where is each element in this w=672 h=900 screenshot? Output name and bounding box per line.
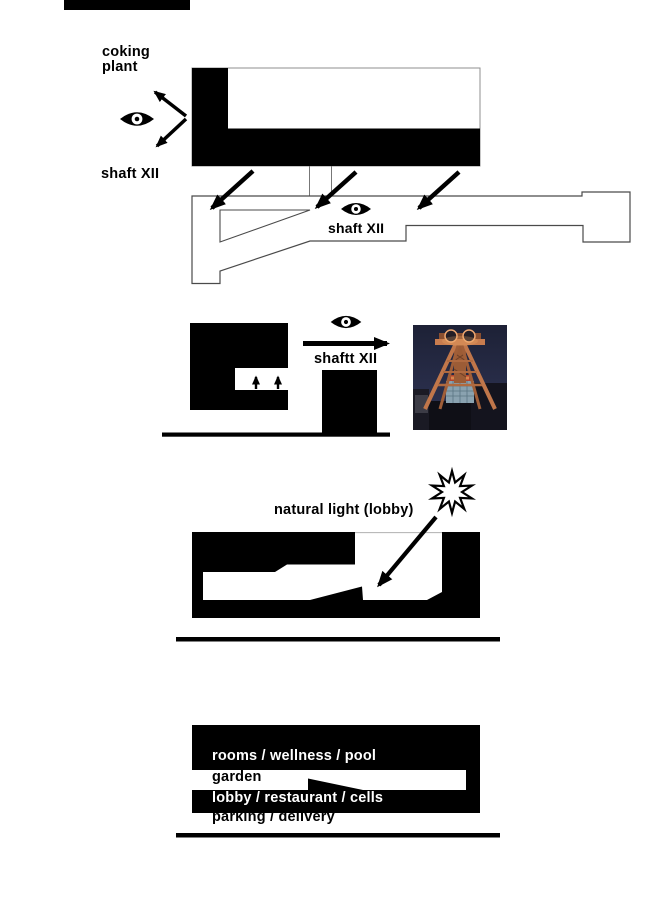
- shaftt-xii-label: shaftt XII: [314, 352, 377, 367]
- eye-icon: [331, 316, 362, 328]
- section-rule: [176, 833, 500, 838]
- shaft-plan-shape: [192, 68, 480, 166]
- shaft-connector-lines: [310, 166, 332, 196]
- diagram-artwork: [0, 0, 672, 900]
- tower-block: [322, 370, 377, 434]
- section-rule: [176, 637, 500, 642]
- view-direction-arrows: [155, 92, 186, 146]
- program-row-parking: parking / delivery: [212, 810, 335, 825]
- program-row-lobby: lobby / restaurant / cells: [212, 791, 383, 806]
- up-arrows: [256, 377, 278, 389]
- coking-plant-label: coking plant: [102, 45, 150, 75]
- cropped-artifact-bar: [64, 0, 190, 10]
- winding-tower-photo: [413, 325, 507, 430]
- natural-light-label: natural light (lobby): [274, 503, 414, 518]
- sunburst-icon: [432, 471, 472, 513]
- program-row-garden: garden: [212, 770, 262, 785]
- shaft-xii-label: shaft XII: [101, 167, 159, 182]
- program-row-rooms: rooms / wellness / pool: [212, 749, 376, 764]
- diagram-page: coking plant shaft XII shaft XII shaftt …: [0, 0, 672, 900]
- light-section-shape: [192, 532, 480, 618]
- elevation-block-shape: [190, 323, 288, 410]
- shaft-xii-label: shaft XII: [328, 221, 384, 236]
- site-plan-outline: [192, 192, 630, 284]
- light-arrow: [379, 517, 436, 585]
- eye-icon: [120, 112, 154, 126]
